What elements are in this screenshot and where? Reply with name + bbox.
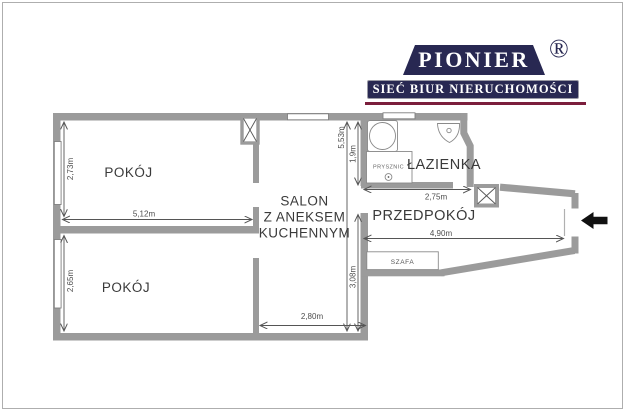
- room-top-label: POKÓJ: [104, 165, 152, 180]
- bathtub: [368, 121, 398, 152]
- dim-room-top-width: 5,12m: [133, 210, 156, 219]
- window-salon: [288, 114, 329, 120]
- window-room-top: [54, 142, 61, 205]
- floorplan-drawing: SZAFA 2,73m 5,12m 2,65m 5,53m 1,9m 3,08m…: [0, 0, 625, 411]
- entrance-arrow-icon: [581, 212, 608, 229]
- dim-salon-full-height: 5,53m: [337, 126, 346, 149]
- wardrobe-box: SZAFA: [367, 252, 439, 270]
- salon-label-line2: Z ANEKSEM: [264, 210, 346, 225]
- dim-room-top-height: 2,73m: [66, 158, 75, 181]
- dim-hallway-length: 4,90m: [430, 229, 453, 238]
- washbasin: [438, 124, 460, 143]
- bathroom-label: ŁAZIENKA: [407, 157, 481, 173]
- dim-salon-width: 2,80m: [301, 312, 324, 321]
- shaft-hallway: [476, 186, 497, 206]
- window-room-bottom: [54, 240, 61, 309]
- dim-bathroom-width: 2,75m: [425, 193, 448, 202]
- shower-label: PRYSZNIC: [373, 165, 404, 171]
- floorplan-page: PIONIER ® SIEĆ BIUR NIERUCHOMOŚCI: [0, 0, 625, 411]
- wardrobe-label: SZAFA: [391, 259, 415, 266]
- salon-label-line3: KUCHENNYM: [259, 226, 351, 241]
- shaft-top: [242, 117, 258, 143]
- salon-label-line1: SALON: [280, 194, 328, 209]
- dim-salon-lower-height: 3,08m: [349, 266, 358, 289]
- room-bottom-label: POKÓJ: [102, 280, 150, 295]
- dim-bathroom-height: 1,9m: [349, 145, 358, 163]
- dim-room-bottom-height: 2,65m: [66, 270, 75, 293]
- window-bathroom: [383, 113, 415, 119]
- hallway-label: PRZEDPOKÓJ: [372, 207, 475, 224]
